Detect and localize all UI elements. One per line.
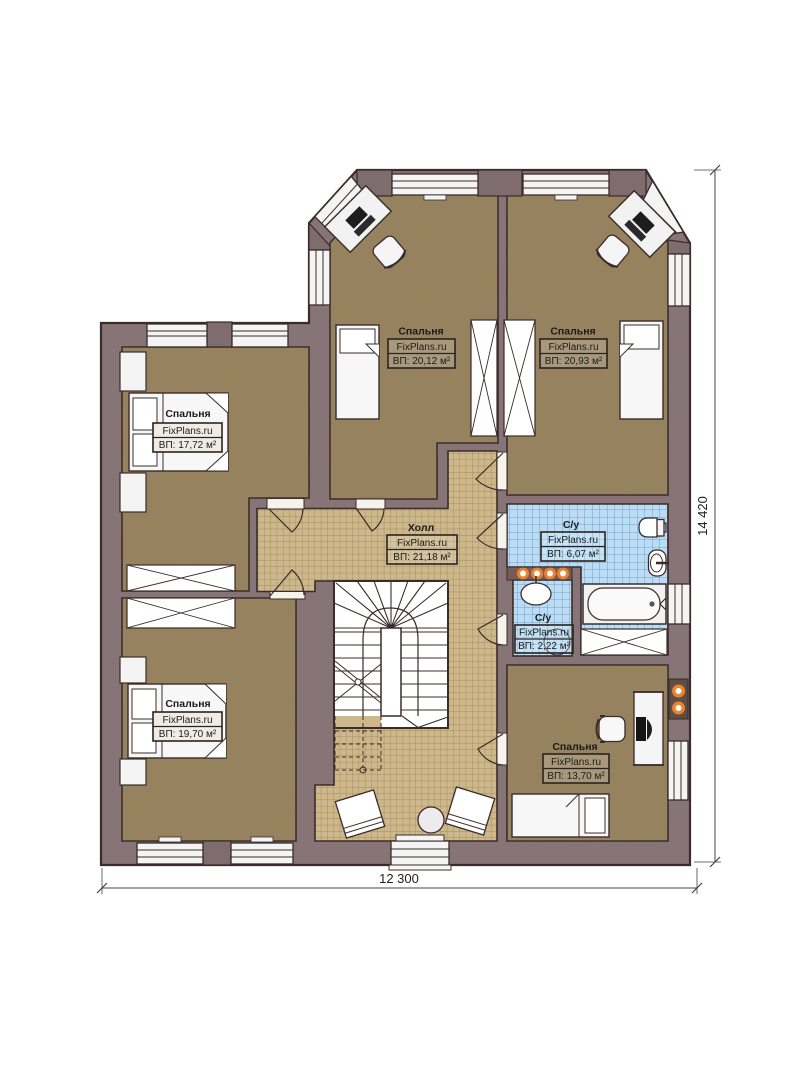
svg-text:ВП: 2,22 м²: ВП: 2,22 м² [518, 641, 571, 652]
svg-text:FixPlans.ru: FixPlans.ru [551, 757, 601, 768]
svg-text:FixPlans.ru: FixPlans.ru [397, 538, 447, 549]
svg-text:С/у: С/у [535, 612, 552, 624]
svg-text:12 300: 12 300 [379, 871, 419, 886]
svg-text:Спальня: Спальня [398, 326, 443, 338]
svg-text:ВП: 13,70 м²: ВП: 13,70 м² [547, 771, 605, 782]
svg-text:14 420: 14 420 [695, 496, 710, 536]
svg-text:ВП: 6,07 м²: ВП: 6,07 м² [547, 549, 600, 560]
svg-text:ВП: 20,93 м²: ВП: 20,93 м² [545, 356, 603, 367]
svg-text:FixPlans.ru: FixPlans.ru [548, 535, 598, 546]
svg-text:Спальня: Спальня [552, 741, 597, 753]
svg-text:FixPlans.ru: FixPlans.ru [396, 342, 446, 353]
svg-text:Спальня: Спальня [165, 698, 210, 710]
svg-text:FixPlans.ru: FixPlans.ru [162, 715, 212, 726]
svg-text:ВП: 19,70 м²: ВП: 19,70 м² [159, 729, 217, 740]
svg-text:FixPlans.ru: FixPlans.ru [548, 342, 598, 353]
svg-text:ВП: 21,18 м²: ВП: 21,18 м² [393, 552, 451, 563]
svg-text:FixPlans.ru: FixPlans.ru [519, 628, 569, 639]
svg-text:С/у: С/у [563, 519, 580, 531]
svg-text:Спальня: Спальня [165, 408, 210, 420]
svg-text:Холл: Холл [408, 522, 434, 534]
svg-text:ВП: 20,12 м²: ВП: 20,12 м² [393, 356, 451, 367]
svg-text:Спальня: Спальня [550, 326, 595, 338]
svg-text:ВП: 17,72 м²: ВП: 17,72 м² [159, 440, 217, 451]
svg-text:FixPlans.ru: FixPlans.ru [162, 426, 212, 437]
